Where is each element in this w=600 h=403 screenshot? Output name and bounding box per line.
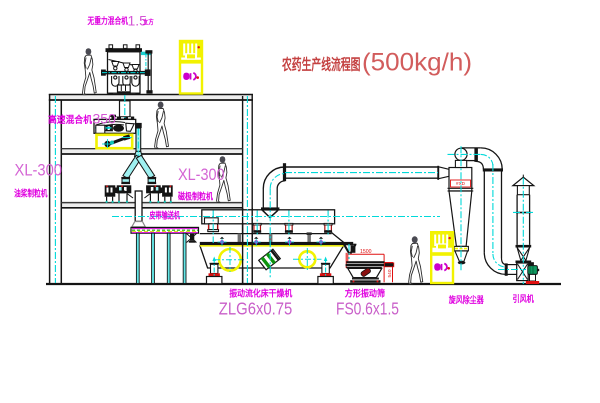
- svg-text:XL-300: XL-300: [15, 161, 63, 179]
- svg-text:磁极制粒机: 磁极制粒机: [178, 191, 214, 202]
- svg-text:高速混合机: 高速混合机: [48, 114, 92, 126]
- svg-text:540: 540: [387, 269, 393, 277]
- svg-text:1500: 1500: [360, 249, 372, 255]
- svg-text:旋风除尘器: 旋风除尘器: [448, 294, 485, 305]
- svg-text:立方: 立方: [143, 17, 154, 26]
- svg-text:皮带输送机: 皮带输送机: [149, 210, 181, 221]
- svg-text:XL-300: XL-300: [178, 166, 225, 184]
- svg-text:方形振动筛: 方形振动筛: [345, 288, 385, 299]
- svg-text:引风机: 引风机: [513, 293, 534, 304]
- svg-text:ZLG6x0.75: ZLG6x0.75: [219, 299, 292, 319]
- svg-text:FS0.6x1.5: FS0.6x1.5: [336, 299, 399, 319]
- svg-text:无重力混合机: 无重力混合机: [87, 15, 128, 26]
- svg-text:350: 350: [93, 111, 117, 127]
- svg-text:油桨制粒机: 油桨制粒机: [14, 187, 48, 198]
- svg-text:(500kg/h): (500kg/h): [362, 49, 472, 77]
- svg-text:振动流化床干燥机: 振动流化床干燥机: [229, 288, 292, 299]
- svg-text:农药生产线流程图: 农药生产线流程图: [281, 56, 360, 74]
